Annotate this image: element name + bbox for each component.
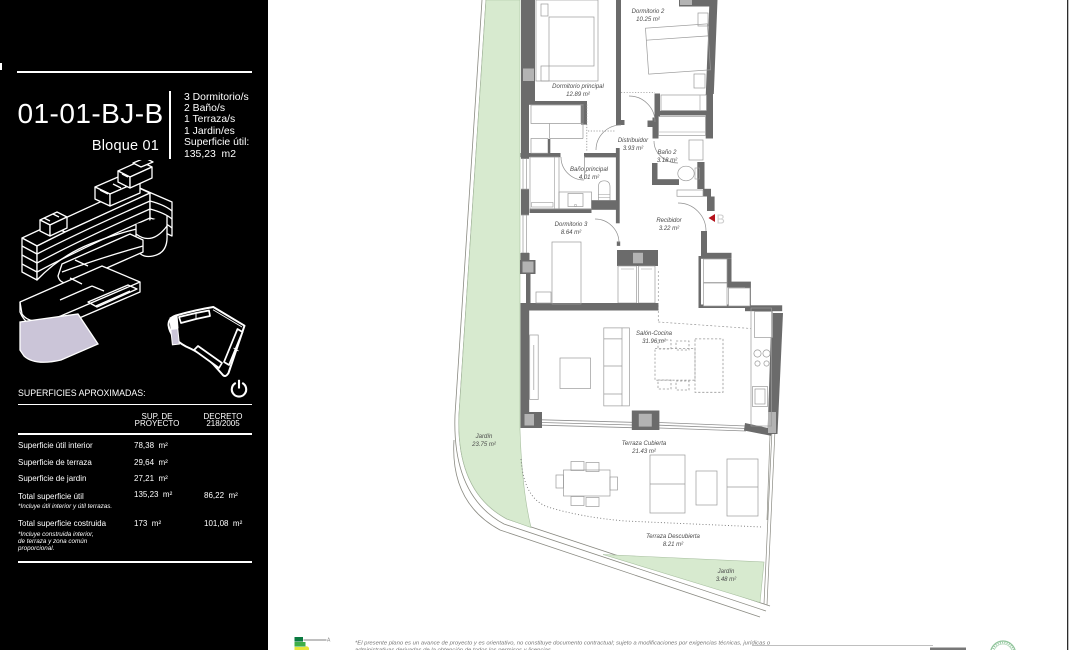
svg-text:31.96 m²: 31.96 m² bbox=[642, 339, 667, 345]
svg-text:23.75 m²: 23.75 m² bbox=[471, 442, 497, 448]
svg-text:Distribuidor: Distribuidor bbox=[618, 138, 649, 144]
svg-text:A: A bbox=[327, 638, 331, 644]
svg-text:Dormitorio 3: Dormitorio 3 bbox=[555, 222, 588, 228]
svg-text:8.21 m²: 8.21 m² bbox=[663, 542, 684, 548]
svg-text:Terraza Cubierta: Terraza Cubierta bbox=[622, 441, 667, 447]
svg-text:Baño 2: Baño 2 bbox=[657, 150, 677, 156]
svg-text:Salón-Cocina: Salón-Cocina bbox=[636, 331, 673, 337]
svg-text:Dormitorio 2: Dormitorio 2 bbox=[632, 9, 665, 15]
svg-text:Jardín: Jardín bbox=[475, 434, 493, 440]
svg-text:8.64 m²: 8.64 m² bbox=[561, 230, 582, 236]
svg-text:Jardín: Jardín bbox=[717, 569, 735, 575]
svg-text:12.89 m²: 12.89 m² bbox=[566, 92, 591, 98]
svg-text:3.48 m²: 3.48 m² bbox=[716, 577, 737, 583]
svg-text:10.25 m²: 10.25 m² bbox=[636, 17, 661, 23]
svg-text:B: B bbox=[717, 213, 725, 227]
svg-text:Terraza Descubierta: Terraza Descubierta bbox=[646, 534, 700, 540]
svg-text:Dormitorio principal: Dormitorio principal bbox=[552, 84, 604, 90]
svg-text:*El presente plano es un avanc: *El presente plano es un avance de proye… bbox=[355, 641, 771, 647]
svg-text:3.22 m²: 3.22 m² bbox=[659, 226, 680, 232]
svg-text:4.01 m²: 4.01 m² bbox=[579, 175, 600, 181]
svg-text:3.18 m²: 3.18 m² bbox=[657, 158, 678, 164]
svg-text:Baño principal: Baño principal bbox=[570, 167, 609, 173]
svg-text:21.43 m²: 21.43 m² bbox=[631, 449, 657, 455]
svg-text:Recibidor: Recibidor bbox=[656, 218, 682, 224]
svg-text:3.93 m²: 3.93 m² bbox=[623, 146, 644, 152]
